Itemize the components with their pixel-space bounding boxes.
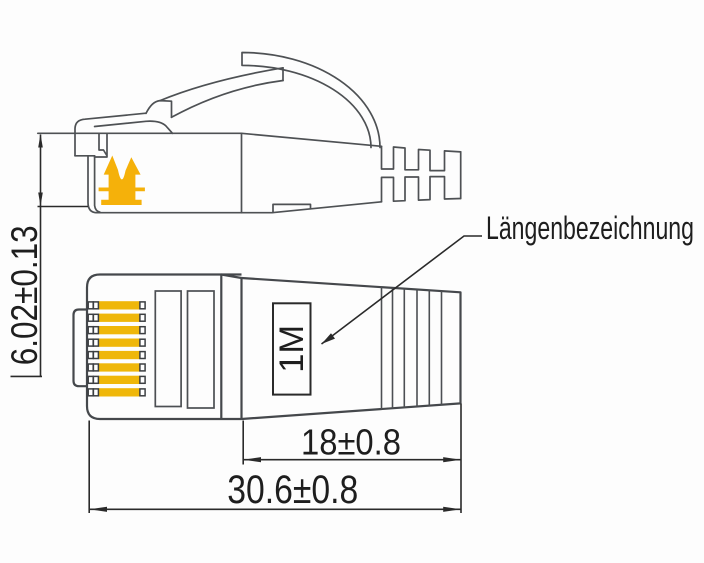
svg-text:30.6±0.8: 30.6±0.8	[227, 468, 358, 512]
svg-text:18±0.8: 18±0.8	[301, 422, 401, 463]
svg-text:Längenbezeichnung: Längenbezeichnung	[486, 210, 694, 246]
svg-text:6.02±0.13: 6.02±0.13	[4, 225, 45, 365]
svg-text:1M: 1M	[273, 325, 311, 373]
